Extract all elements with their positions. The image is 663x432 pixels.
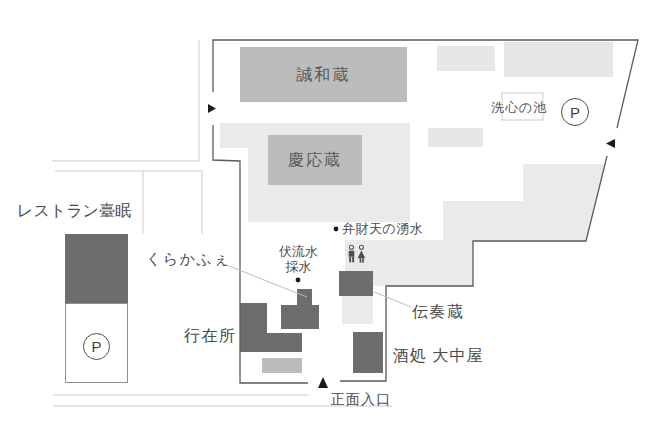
spring-tap-label: 伏流水 採水 — [268, 244, 329, 274]
grounds-area-east — [443, 164, 604, 241]
spring-tap-label-line1: 伏流水 — [279, 244, 318, 259]
west-entrance-arrow-icon — [208, 104, 216, 113]
pond-label: 洗心の池 — [491, 101, 547, 116]
parking-icon-west: P — [83, 333, 110, 360]
seiwakura-label: 誠和蔵 — [240, 66, 407, 84]
benzaiten-spring-label: 弁財天の湧水 — [342, 222, 423, 237]
spring-tap-dot-icon — [296, 278, 301, 283]
anzaisho-label: 行在所 — [184, 327, 237, 345]
parking-letter: P — [570, 104, 580, 121]
road-northwest — [52, 40, 199, 161]
keiokura-label: 慶応蔵 — [268, 151, 362, 169]
densokura-pointer-line — [374, 292, 411, 307]
parking-letter: P — [91, 338, 101, 355]
kuracafe-label: くらかふぇ — [146, 250, 230, 267]
east-entrance-arrow-icon — [606, 139, 615, 148]
spring-tap-label-line2: 採水 — [286, 259, 312, 274]
restroom-icon — [349, 245, 366, 262]
restaurant-label: レストラン臺眠 — [17, 202, 131, 220]
parking-icon-east: P — [561, 98, 589, 126]
main-entrance-arrow-icon — [318, 377, 328, 388]
sakedokoro-label: 酒処 大中屋 — [393, 347, 483, 365]
benzaiten-spring-dot-icon — [334, 227, 339, 232]
site-map: 誠和蔵 慶応蔵 洗心の池 レストラン臺眠 くらかふぇ 弁財天の湧水 伏流水 採水… — [0, 0, 663, 432]
densokura-label: 伝奏蔵 — [412, 303, 465, 321]
main-entrance-label: 正面入口 — [331, 391, 391, 407]
